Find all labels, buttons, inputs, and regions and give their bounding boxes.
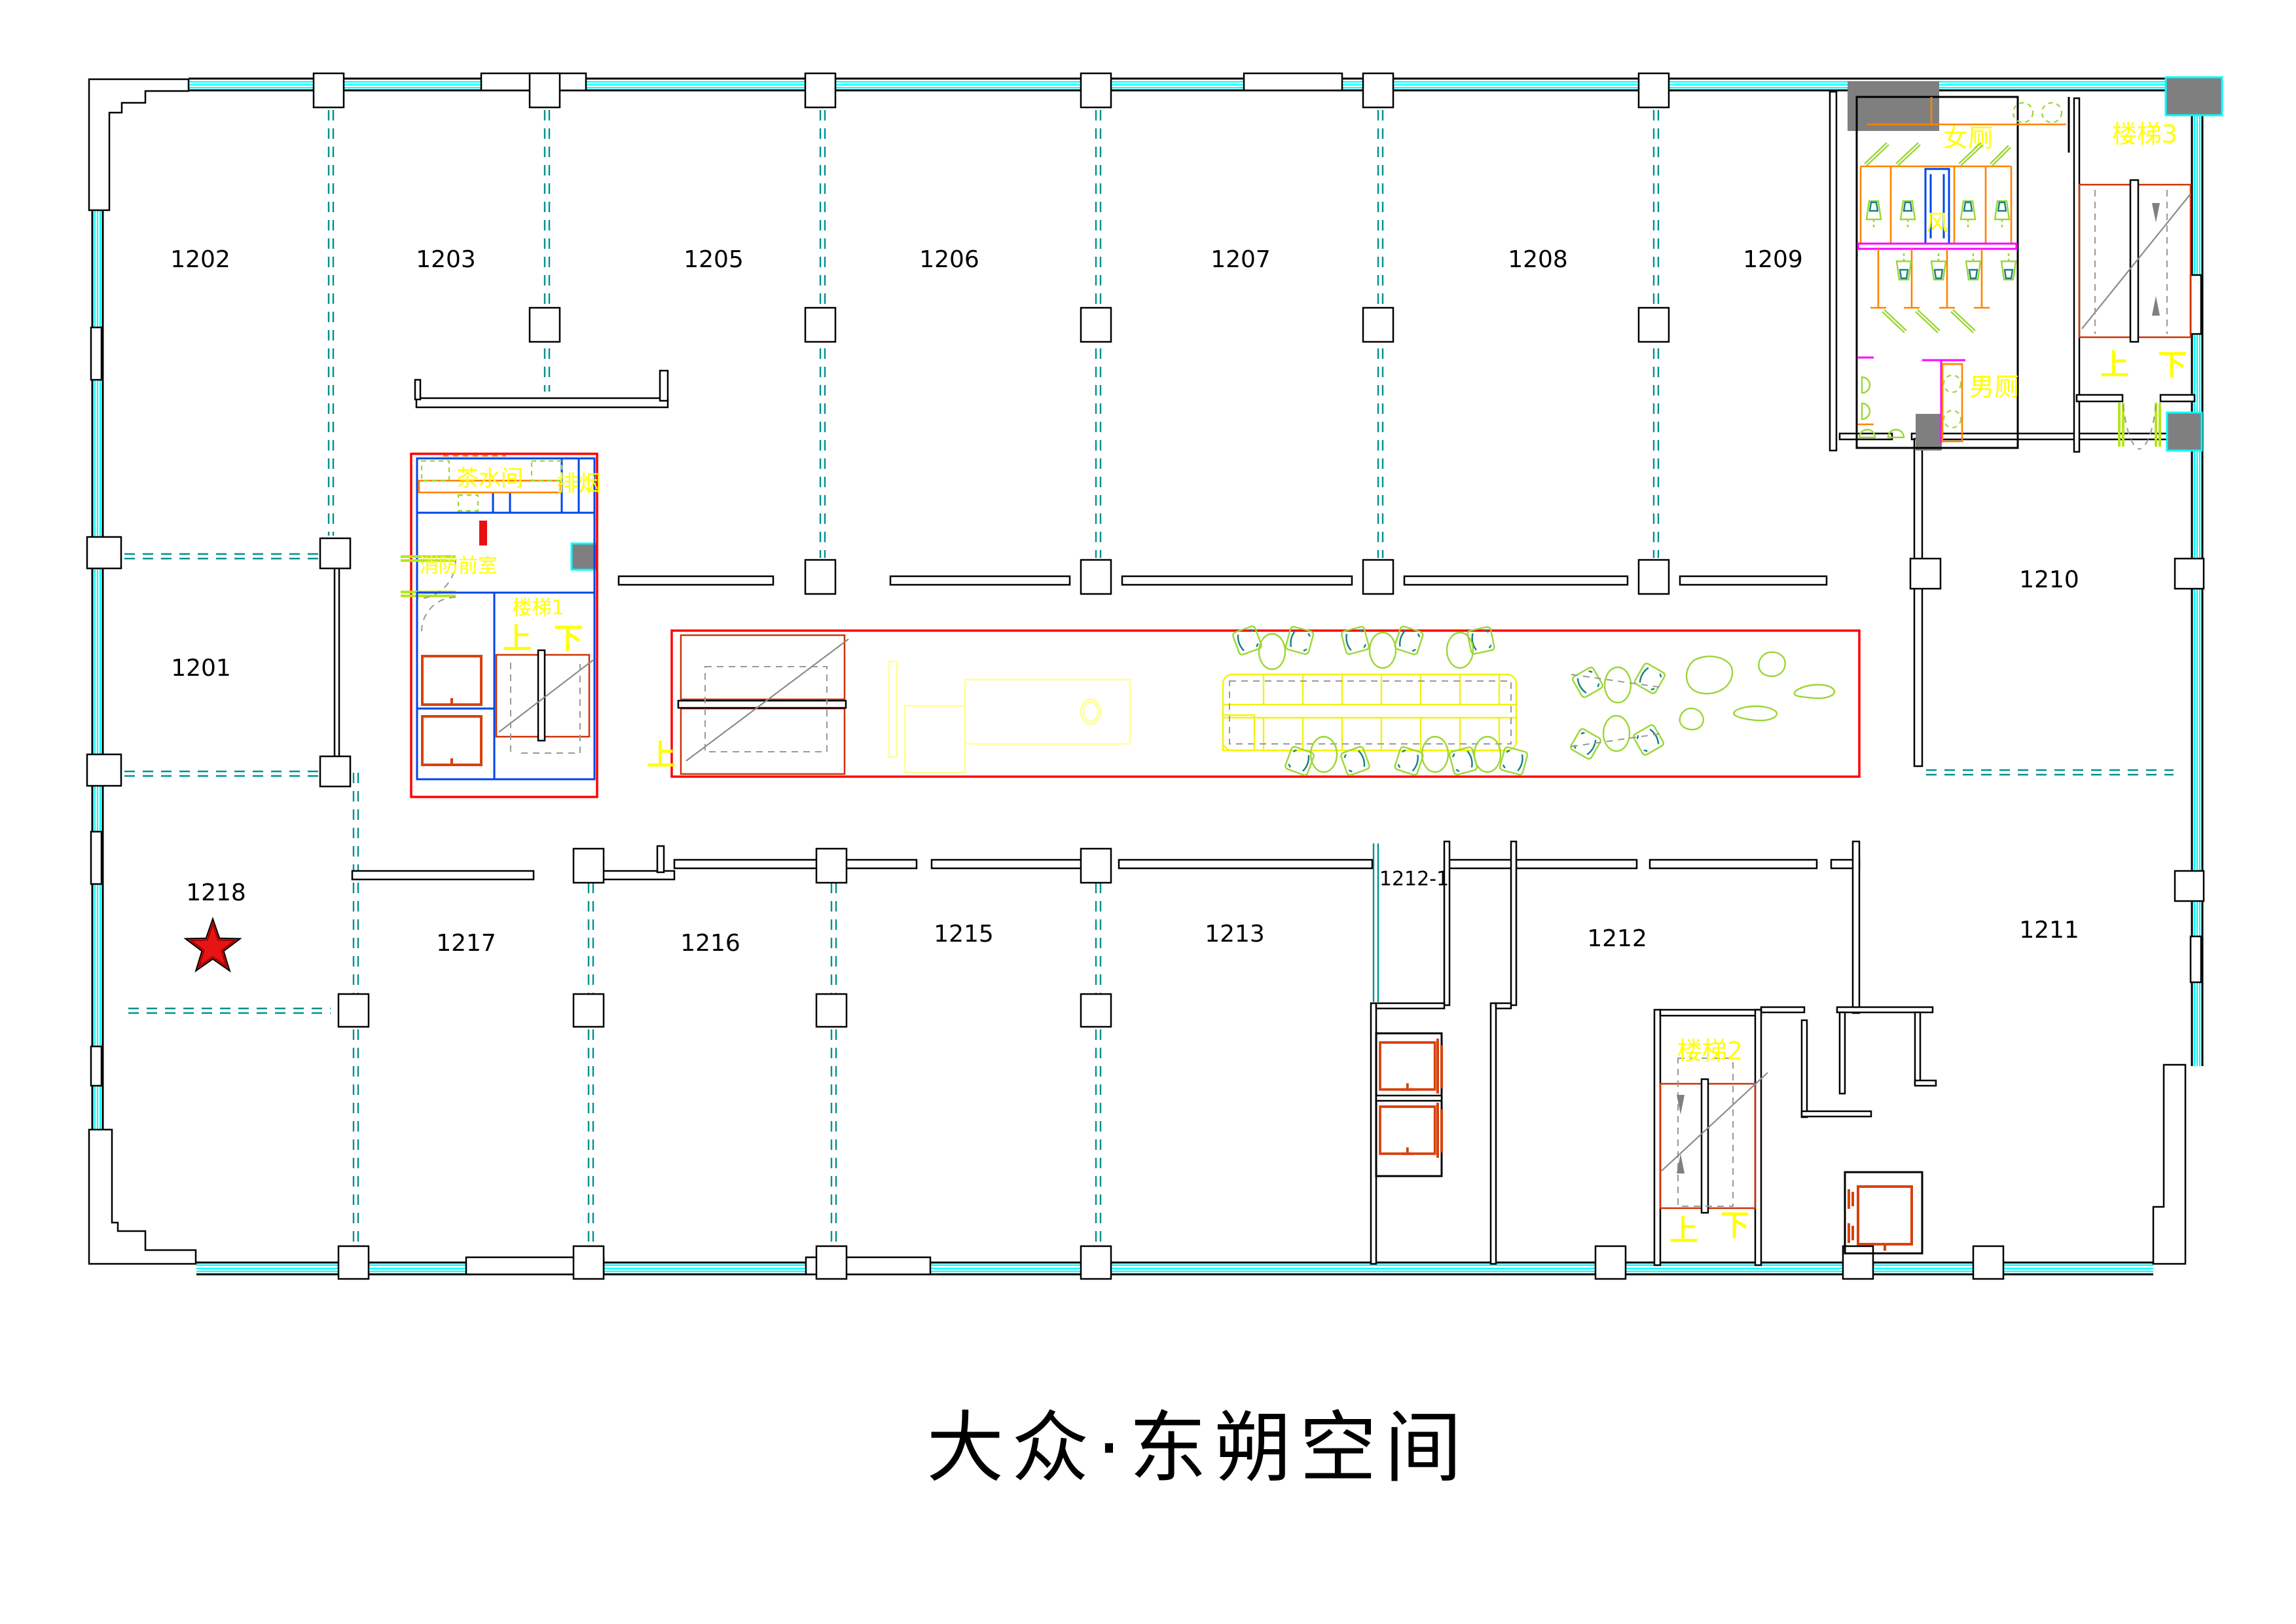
outer-walls [89, 73, 2205, 1274]
women-toilet-label: 女厕 [1943, 124, 1993, 153]
tea-room-label: 茶水间 [456, 466, 523, 492]
room-label-1203: 1203 [416, 246, 476, 273]
stair3-down-label: 下 [2158, 348, 2187, 382]
room-label-1201: 1201 [171, 655, 231, 682]
floor-plan-canvas: 茶水间 排烟 消防前室 楼梯1 上 下 上 [0, 0, 2296, 1624]
fire-anteroom: 消防前室 [401, 513, 594, 631]
room-label-1210: 1210 [2019, 566, 2079, 593]
central-core: 茶水间 排烟 消防前室 楼梯1 上 下 [401, 454, 601, 797]
room-label-1208: 1208 [1508, 246, 1568, 273]
room-label-1212: 1212 [1587, 925, 1647, 952]
room-labels: 1202 1203 1205 1206 1207 1208 1209 1201 … [170, 246, 2079, 957]
room-label-1216: 1216 [680, 930, 740, 957]
fire-extinguisher [479, 521, 487, 545]
corner-step-bottom-right [2153, 1065, 2185, 1264]
lounge-cluster [1569, 662, 1666, 760]
window-mullions [91, 73, 2201, 1274]
room-label-1206: 1206 [919, 246, 979, 273]
stair1-down-label: 下 [554, 622, 583, 655]
room-label-1209: 1209 [1743, 246, 1803, 273]
room-label-1217: 1217 [436, 930, 496, 957]
smoke-exhaust-label: 排烟 [556, 471, 601, 497]
stair3-label: 楼梯3 [2112, 120, 2178, 149]
stair3-up-label: 上 [2100, 348, 2129, 382]
tea-room: 茶水间 排烟 [417, 456, 601, 513]
room-label-1205: 1205 [683, 246, 744, 273]
men-toilet-label: 男厕 [1969, 373, 2019, 401]
stair-2: 楼梯2 上 下 [1660, 1037, 1768, 1247]
reception-desk [889, 661, 1130, 773]
room-label-1213: 1213 [1205, 921, 1265, 948]
men-stalls [1870, 249, 2016, 333]
room-label-1215: 1215 [934, 921, 994, 948]
red-star-marker [185, 919, 240, 971]
room-label-1207: 1207 [1211, 246, 1271, 273]
core-elevators [417, 593, 494, 779]
organic-shapes [1680, 652, 1834, 729]
unit-partitions [124, 110, 2174, 1261]
women-stalls: 风 [1861, 143, 2011, 244]
corner-step-top-left [89, 79, 189, 210]
stair2-label: 楼梯2 [1677, 1037, 1743, 1065]
long-table [1223, 674, 1516, 750]
corridor-stair: 上 [647, 635, 848, 774]
room-label-1212-1: 1212-1 [1379, 868, 1449, 891]
table-chairs [1232, 625, 1528, 776]
core-stair-1: 楼梯1 上 下 [494, 593, 594, 779]
stair1-up-label: 上 [503, 622, 532, 655]
stair2-down-label: 下 [1721, 1209, 1749, 1242]
structural-columns [87, 73, 2204, 1279]
fire-anteroom-label: 消防前室 [419, 555, 498, 578]
plan-title: 大众·东朔空间 [926, 1403, 1470, 1493]
corridor-stair-up-label: 上 [647, 739, 676, 772]
room-label-1218: 1218 [186, 879, 246, 906]
elevator-3 [1845, 1172, 1922, 1253]
vent-shaft-label: 风 [1926, 210, 1948, 236]
stair1-label: 楼梯1 [512, 597, 564, 619]
toilet-block: 女厕 风 男厕 [1857, 97, 2069, 448]
stair2-up-label: 上 [1669, 1214, 1698, 1247]
room-label-1202: 1202 [170, 246, 230, 273]
corridor-zone: 上 [647, 625, 1859, 777]
room-label-1211: 1211 [2019, 917, 2079, 944]
floor-plan-page: 茶水间 排烟 消防前室 楼梯1 上 下 上 [0, 0, 2296, 1624]
corner-step-bottom-left [89, 1130, 196, 1264]
bottom-elevators [1376, 1033, 1442, 1176]
